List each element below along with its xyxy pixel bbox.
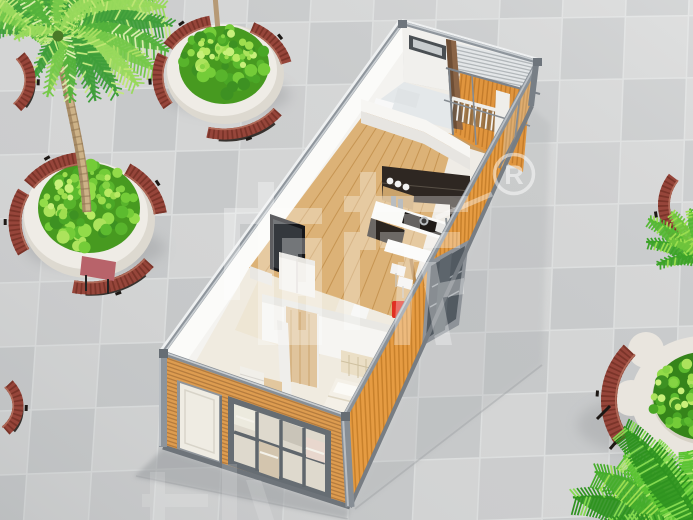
svg-text:R: R [504,160,524,190]
